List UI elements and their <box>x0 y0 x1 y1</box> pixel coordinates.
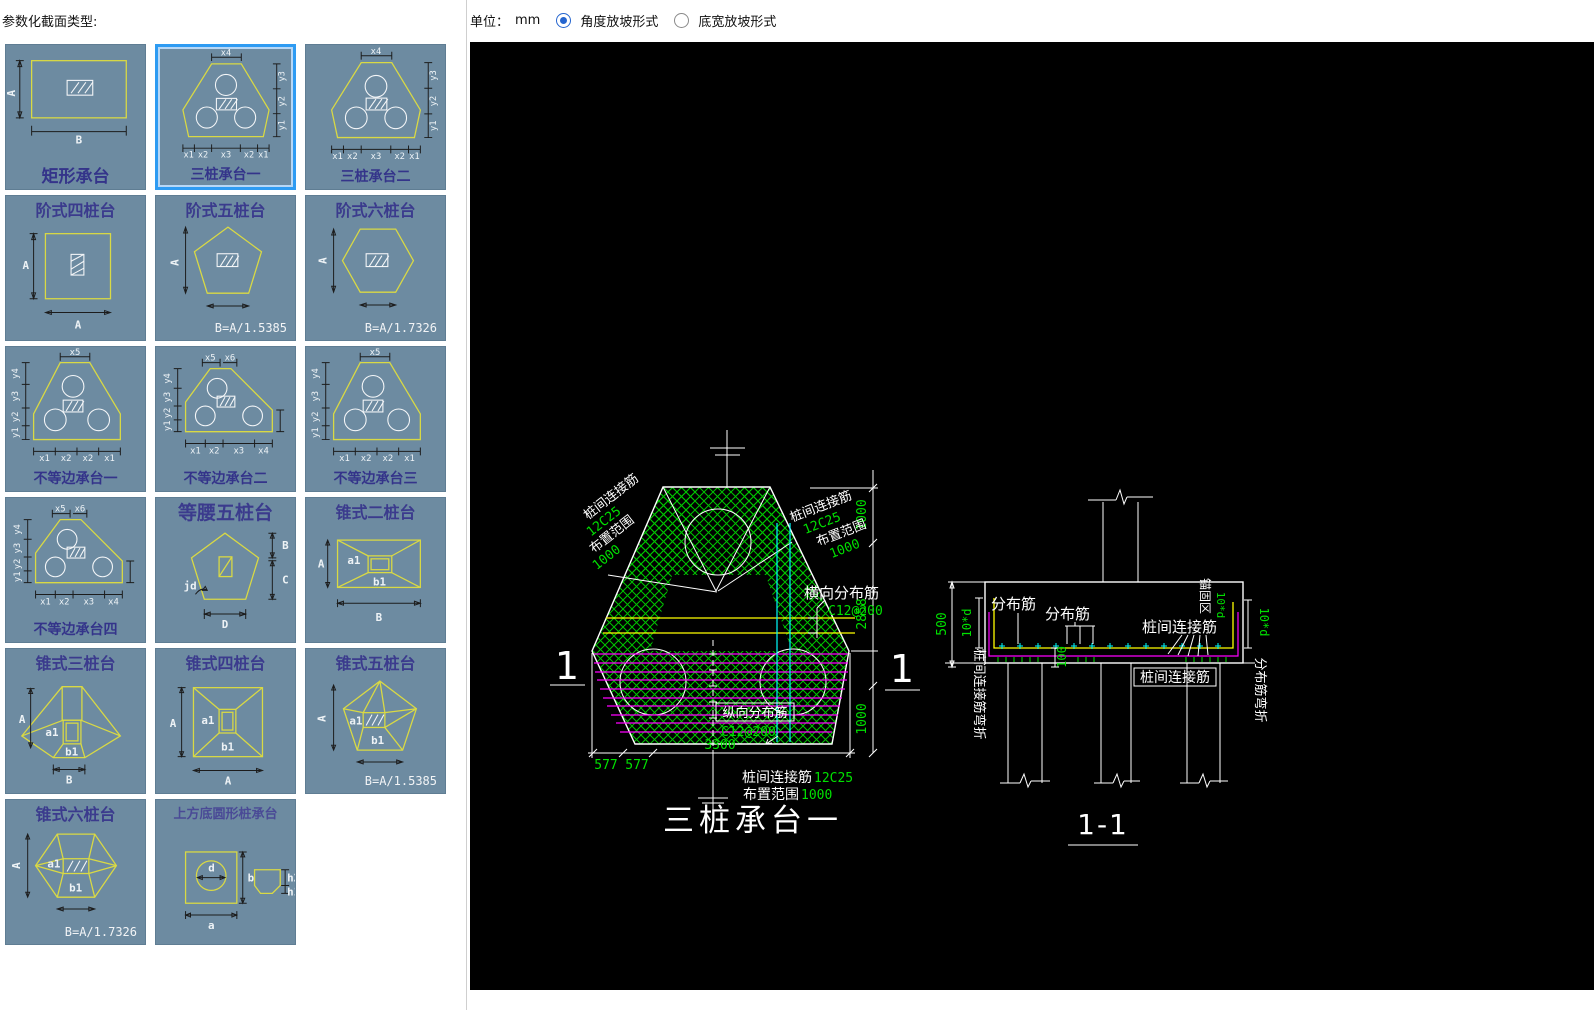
transverse-rebar-label: 横向分布筋 <box>804 584 879 602</box>
dim-100: 100 <box>1055 646 1069 668</box>
dim-bottom-total: 3300 <box>704 738 735 753</box>
svg-text:x1: x1 <box>183 151 193 161</box>
tile-label: 阶式六桩台 <box>306 196 445 220</box>
svg-text:b1: b1 <box>371 734 384 747</box>
bottom-note2-spec: 1000 <box>801 788 832 803</box>
thumb-isosceles-5pile: jd B C D <box>156 522 295 642</box>
tile-step-4pile[interactable]: 阶式四桩台 A A <box>5 195 146 341</box>
section-mark-left: 1 <box>555 644 579 688</box>
svg-text:B: B <box>282 539 289 552</box>
svg-text:A: A <box>316 715 329 722</box>
svg-text:x1: x1 <box>332 152 343 162</box>
dim-577-b: 577 <box>625 758 648 773</box>
section-type-sidebar: A B 矩形承台 x4 y3 y2 y1 <box>0 42 466 1010</box>
tile-cone-6pile[interactable]: 锥式六桩台 A a1 b1 B=A/1.7326 <box>5 799 146 945</box>
plan-view: 1000 2858 1000 3300 577 577 1 1 桩间连接筋 12… <box>550 430 920 839</box>
thumb-tri-cap-1: x4 y3 y2 y1 x1 x2 x3 x2 x1 <box>158 47 293 167</box>
svg-text:x2: x2 <box>394 152 405 162</box>
svg-text:B: B <box>376 611 383 624</box>
svg-text:x2: x2 <box>59 597 70 607</box>
svg-text:b1: b1 <box>373 575 386 588</box>
tile-label: 矩形承台 <box>6 169 145 189</box>
top-toolbar: 参数化截面类型: 单位： mm 角度放坡形式 底宽放坡形式 <box>0 0 1594 42</box>
thumb-step-5pile: A <box>156 220 295 321</box>
svg-text:y3: y3 <box>311 391 321 402</box>
tile-formula: B=A/1.5385 <box>156 321 295 340</box>
svg-text:y3: y3 <box>13 543 23 554</box>
svg-text:D: D <box>222 618 229 631</box>
svg-text:A: A <box>170 717 177 730</box>
tile-label: 不等边承台四 <box>6 622 145 642</box>
section-type-grid: A B 矩形承台 x4 y3 y2 y1 <box>5 44 446 945</box>
panel-separator <box>466 0 467 1010</box>
thumb-square-top-round-pile: d b a h2 h1 <box>156 824 295 944</box>
svg-text:x2: x2 <box>361 454 372 464</box>
svg-text:a1: a1 <box>347 554 360 567</box>
dist-bend-label: 分布筋弯折 <box>1252 657 1268 722</box>
svg-text:a1: a1 <box>201 714 214 727</box>
radio-width-slope[interactable] <box>674 13 689 28</box>
svg-text:x4: x4 <box>371 47 382 57</box>
svg-text:y4: y4 <box>11 368 21 379</box>
empty-grid-cell <box>305 799 446 945</box>
tile-formula: B=A/1.7326 <box>6 925 145 944</box>
thumb-uneq-cap-4: x5 x6 y4 y3 y2 y1 x1 x2 x3 x4 <box>6 498 145 622</box>
tile-label: 锥式六桩台 <box>6 800 145 824</box>
tile-cone-3pile[interactable]: 锥式三桩台 A a1 b1 B <box>5 648 146 794</box>
svg-text:y1: y1 <box>311 427 321 438</box>
svg-text:x3: x3 <box>221 151 231 161</box>
tile-label: 阶式五桩台 <box>156 196 295 220</box>
tile-label: 三桩承台一 <box>158 167 293 187</box>
svg-text:A: A <box>19 713 26 726</box>
thumb-cone-2pile: A a1 b1 B <box>306 522 445 642</box>
svg-text:y1: y1 <box>163 420 173 431</box>
svg-text:A: A <box>225 774 232 787</box>
svg-text:y1: y1 <box>429 120 439 131</box>
svg-text:a: a <box>208 919 215 932</box>
tile-tri-cap-1[interactable]: x4 y3 y2 y1 x1 x2 x3 x2 x1 三桩承台一 <box>155 44 296 190</box>
svg-text:x1: x1 <box>39 454 50 464</box>
tile-label: 三桩承台二 <box>306 169 445 189</box>
svg-text:C: C <box>282 573 289 586</box>
svg-text:x2: x2 <box>61 454 72 464</box>
tile-uneq-cap-2[interactable]: x5 x6 y4 y3 y2 y1 x1 x2 x3 x4 不等边承台二 <box>155 346 296 492</box>
svg-text:x1: x1 <box>339 454 350 464</box>
svg-text:x5: x5 <box>70 348 81 358</box>
app-window: 参数化截面类型: 单位： mm 角度放坡形式 底宽放坡形式 A B <box>0 0 1594 1010</box>
thumb-rect-cap: A B <box>6 45 145 169</box>
svg-text:x1: x1 <box>258 151 268 161</box>
pile-conn-inner-label: 桩间连接筋 <box>1142 618 1217 636</box>
tile-label: 不等边承台三 <box>306 471 445 491</box>
svg-text:A: A <box>6 89 18 96</box>
svg-text:a1: a1 <box>47 858 60 871</box>
svg-text:y2: y2 <box>11 412 21 423</box>
radio-width-slope-label[interactable]: 底宽放坡形式 <box>698 11 776 30</box>
svg-text:A: A <box>10 862 23 869</box>
cad-canvas[interactable]: 1000 2858 1000 3300 577 577 1 1 桩间连接筋 12… <box>470 42 1594 990</box>
thumb-cone-5pile: A a1 b1 <box>306 673 445 774</box>
anchor-zone-label: 锚固区 <box>1198 578 1213 614</box>
svg-text:b1: b1 <box>69 881 82 894</box>
dim-10d-left: 10*d <box>960 609 974 638</box>
thumb-cone-6pile: A a1 b1 <box>6 824 145 925</box>
svg-text:x5: x5 <box>205 354 216 364</box>
tile-formula: B=A/1.7326 <box>306 321 445 340</box>
svg-text:x2: x2 <box>244 151 254 161</box>
bottom-note2-name: 布置范围 <box>743 786 799 803</box>
tile-rect-cap[interactable]: A B 矩形承台 <box>5 44 146 190</box>
dim-577-a: 577 <box>594 758 617 773</box>
svg-text:x5: x5 <box>370 348 381 358</box>
longitudinal-rebar-label: 纵向分布筋 <box>722 705 787 721</box>
tile-label: 锥式三桩台 <box>6 649 145 673</box>
tile-label: 不等边承台一 <box>6 471 145 491</box>
svg-text:y2: y2 <box>277 96 287 106</box>
unit-value: mm <box>515 13 540 28</box>
tile-label: 锥式五桩台 <box>306 649 445 673</box>
svg-text:a1: a1 <box>45 726 58 739</box>
svg-text:x2: x2 <box>209 446 220 456</box>
svg-text:b1: b1 <box>65 746 78 759</box>
unit-label: 单位： <box>470 11 509 30</box>
svg-text:x5: x5 <box>55 505 66 515</box>
svg-text:x4: x4 <box>258 446 269 456</box>
svg-text:y2: y2 <box>163 408 173 419</box>
svg-text:B: B <box>66 773 73 786</box>
thumb-uneq-cap-1: x5 y4 y3 y2 y1 x1 x2 x2 x1 <box>6 347 145 471</box>
svg-text:x4: x4 <box>221 48 231 58</box>
dist-rebar-label-1: 分布筋 <box>991 595 1036 613</box>
tile-cone-5pile[interactable]: 锥式五桩台 A a1 b1 B=A/1.5385 <box>305 648 446 794</box>
svg-text:x1: x1 <box>104 454 115 464</box>
svg-text:x1: x1 <box>404 454 415 464</box>
dist-rebar-label-2: 分布筋 <box>1045 605 1090 623</box>
plan-title: 三桩承台一 <box>663 803 843 839</box>
svg-text:x2: x2 <box>347 152 358 162</box>
tile-label: 上方底圆形桩承台 <box>156 800 295 824</box>
svg-text:y3: y3 <box>429 70 439 81</box>
tile-label: 阶式四桩台 <box>6 196 145 220</box>
thumb-step-6pile: A <box>306 220 445 321</box>
section-view: 500 10*d 桩间连接筋弯折 分布筋 分布筋 桩间连接筋 锚固区 10*d <box>935 490 1271 845</box>
dim-500: 500 <box>935 612 950 635</box>
svg-text:x2: x2 <box>382 454 393 464</box>
section-title: 1-1 <box>1077 808 1129 841</box>
svg-text:a1: a1 <box>349 714 362 727</box>
svg-text:x1: x1 <box>190 446 201 456</box>
dim-right-bottom: 1000 <box>855 703 870 734</box>
longitudinal-rebar-spec: C12@200 <box>721 725 776 740</box>
bottom-note1-spec: 12C25 <box>814 771 853 786</box>
svg-text:h1: h1 <box>287 885 295 898</box>
svg-text:x2: x2 <box>198 151 208 161</box>
svg-text:A: A <box>22 259 29 272</box>
tile-label: 不等边承台二 <box>156 471 295 491</box>
thumb-uneq-cap-2: x5 x6 y4 y3 y2 y1 x1 x2 x3 x4 <box>156 347 295 471</box>
svg-text:d: d <box>208 862 215 875</box>
dim-10d-right: 10*d <box>1257 608 1271 637</box>
svg-text:A: A <box>75 318 82 331</box>
svg-text:y1: y1 <box>277 120 287 130</box>
panel-title: 参数化截面类型: <box>2 11 97 30</box>
svg-text:h2: h2 <box>287 872 295 885</box>
thumb-uneq-cap-3: x5 y4 y3 y2 y1 x1 x2 x2 x1 <box>306 347 445 471</box>
tile-isosceles-5pile[interactable]: 等腰五桩台 jd B C D <box>155 497 296 643</box>
svg-text:y3: y3 <box>11 391 21 402</box>
svg-text:b1: b1 <box>221 741 234 754</box>
svg-text:y3: y3 <box>277 71 287 81</box>
svg-text:x3: x3 <box>83 597 94 607</box>
svg-text:x6: x6 <box>225 354 236 364</box>
svg-text:x6: x6 <box>75 505 86 515</box>
svg-text:A: A <box>318 558 325 571</box>
tile-cone-4pile[interactable]: 锥式四桩台 A a1 b1 A <box>155 648 296 794</box>
tile-formula: B=A/1.5385 <box>306 774 445 793</box>
thumb-cone-3pile: A a1 b1 B <box>6 673 145 793</box>
tile-cone-2pile[interactable]: 锥式二桩台 A a1 b1 B <box>305 497 446 643</box>
svg-text:x3: x3 <box>233 446 244 456</box>
tile-square-top-round-pile[interactable]: 上方底圆形桩承台 d b a h2 h1 <box>155 799 296 945</box>
svg-text:jd: jd <box>184 579 197 592</box>
bottom-note1-name: 桩间连接筋 <box>742 769 812 786</box>
svg-text:y4: y4 <box>311 368 321 379</box>
svg-text:y2: y2 <box>311 412 321 423</box>
tile-step-5pile[interactable]: 阶式五桩台 A B=A/1.5385 <box>155 195 296 341</box>
svg-text:y2: y2 <box>13 559 23 570</box>
svg-text:x1: x1 <box>40 597 51 607</box>
tile-label: 等腰五桩台 <box>156 498 295 522</box>
svg-text:A: A <box>317 257 330 264</box>
tile-uneq-cap-4[interactable]: x5 x6 y4 y3 y2 y1 x1 x2 x3 x4 不等边承台四 <box>5 497 146 643</box>
thumb-cone-4pile: A a1 b1 A <box>156 673 295 793</box>
radio-angle-slope-label[interactable]: 角度放坡形式 <box>580 11 658 30</box>
svg-text:B: B <box>76 133 83 146</box>
section-mark-right: 1 <box>890 647 914 691</box>
tile-uneq-cap-3[interactable]: x5 y4 y3 y2 y1 x1 x2 x2 x1 不等边承台三 <box>305 346 446 492</box>
svg-text:y2: y2 <box>429 96 439 107</box>
anchor-zone-dim: 10*d <box>1214 592 1227 619</box>
transverse-rebar-spec: C12@200 <box>828 604 883 619</box>
tile-label: 锥式二桩台 <box>306 498 445 522</box>
svg-text:x3: x3 <box>371 152 382 162</box>
radio-angle-slope[interactable] <box>556 13 571 28</box>
svg-text:x4: x4 <box>108 597 119 607</box>
thumb-tri-cap-2: x4 y3 y2 y1 x1 x2 x3 x2 x1 <box>306 45 445 169</box>
svg-text:b: b <box>248 872 255 885</box>
svg-text:y1: y1 <box>11 427 21 438</box>
cad-drawing: 1000 2858 1000 3300 577 577 1 1 桩间连接筋 12… <box>470 42 1594 990</box>
tile-tri-cap-2[interactable]: x4 y3 y2 y1 x1 x2 x3 x2 x1 三桩承台二 <box>305 44 446 190</box>
tile-label: 锥式四桩台 <box>156 649 295 673</box>
svg-text:A: A <box>169 259 182 266</box>
svg-text:y1: y1 <box>13 571 23 582</box>
pile-conn-boxed-label: 桩间连接筋 <box>1140 669 1210 686</box>
svg-text:x1: x1 <box>409 152 420 162</box>
svg-text:y4: y4 <box>13 524 23 535</box>
svg-text:x2: x2 <box>82 454 93 464</box>
svg-text:y4: y4 <box>163 373 173 384</box>
thumb-step-4pile: A A <box>6 220 145 340</box>
svg-text:y3: y3 <box>163 392 173 403</box>
tile-uneq-cap-1[interactable]: x5 y4 y3 y2 y1 x1 x2 x2 x1 不等边承台一 <box>5 346 146 492</box>
unit-group: 单位： mm 角度放坡形式 底宽放坡形式 <box>470 11 776 30</box>
tile-step-6pile[interactable]: 阶式六桩台 A B=A/1.7326 <box>305 195 446 341</box>
pile-conn-bend-label: 桩间连接筋弯折 <box>971 648 987 739</box>
